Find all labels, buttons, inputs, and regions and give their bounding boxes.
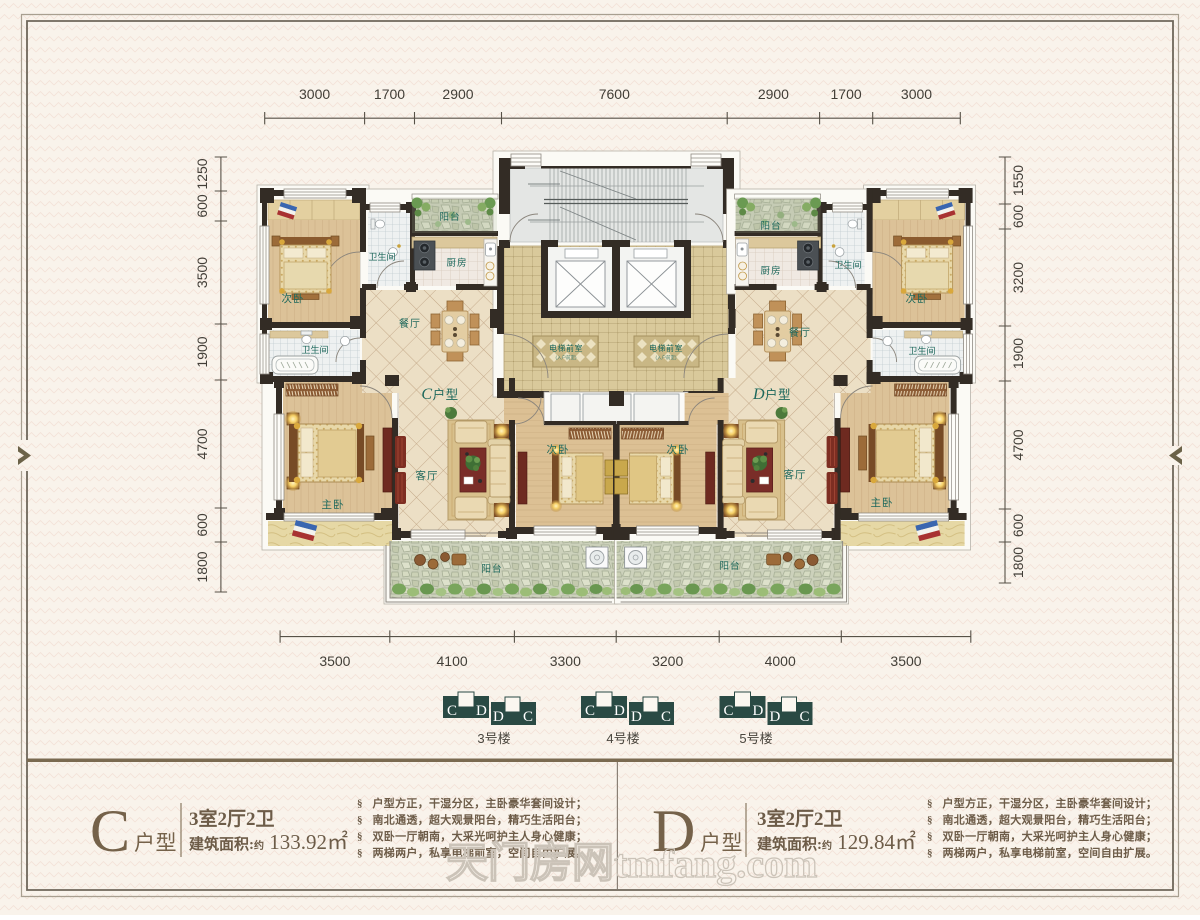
svg-text:C: C (447, 703, 457, 719)
svg-text:D户型: D户型 (752, 386, 791, 403)
svg-text:客厅: 客厅 (416, 469, 439, 482)
svg-text:4700: 4700 (194, 428, 210, 459)
svg-text:餐厅: 餐厅 (399, 317, 421, 330)
svg-text:阳台: 阳台 (760, 220, 781, 232)
svg-text:§户型方正，干湿分区，主卧豪华套间设计；: §户型方正，干湿分区，主卧豪华套间设计； (357, 796, 587, 810)
svg-text:电梯前室: 电梯前室 (649, 343, 683, 353)
svg-text:3300: 3300 (550, 653, 581, 669)
svg-text:餐厅: 餐厅 (789, 326, 811, 339)
svg-text:卫生间: 卫生间 (908, 345, 935, 356)
svg-text:3500: 3500 (890, 653, 921, 669)
svg-text:阳台: 阳台 (439, 211, 460, 223)
svg-text:3000: 3000 (299, 86, 330, 102)
svg-text:主卧: 主卧 (322, 498, 345, 511)
svg-text:厨房: 厨房 (446, 257, 467, 269)
svg-text:600: 600 (194, 194, 210, 218)
svg-text:600: 600 (194, 513, 210, 537)
svg-text:阳台: 阳台 (719, 560, 740, 572)
svg-text:卫生间: 卫生间 (834, 259, 861, 270)
svg-text:3200: 3200 (652, 653, 683, 669)
svg-text:600: 600 (1010, 205, 1026, 229)
svg-text:4700: 4700 (1010, 429, 1026, 460)
svg-text:3200: 3200 (1010, 262, 1026, 293)
svg-text:卫生间: 卫生间 (368, 251, 395, 262)
svg-text:1800: 1800 (194, 551, 210, 582)
svg-text:1900: 1900 (1010, 338, 1026, 369)
svg-text:天门房网tmfang.com: 天门房网tmfang.com (446, 840, 817, 887)
svg-text:3000: 3000 (901, 86, 932, 102)
svg-text:户型: 户型 (134, 831, 177, 855)
svg-text:D: D (476, 703, 487, 719)
svg-text:阳台: 阳台 (481, 563, 502, 575)
svg-text:4000: 4000 (765, 653, 796, 669)
svg-text:次卧: 次卧 (282, 292, 305, 305)
svg-text:2900: 2900 (758, 86, 789, 102)
svg-text:3号楼: 3号楼 (477, 731, 510, 746)
svg-text:1550: 1550 (1010, 165, 1026, 196)
svg-text:(入户前室): (入户前室) (556, 354, 577, 361)
svg-text:§南北通透，超大观景阳台，精巧生活阳台；: §南北通透，超大观景阳台，精巧生活阳台； (357, 813, 587, 827)
svg-text:C: C (523, 709, 533, 725)
svg-text:厨房: 厨房 (760, 265, 781, 277)
svg-text:1900: 1900 (194, 336, 210, 367)
svg-text:电梯前室: 电梯前室 (549, 343, 583, 353)
svg-text:次卧: 次卧 (667, 443, 690, 456)
svg-text:5号楼: 5号楼 (739, 731, 772, 746)
svg-text:600: 600 (1010, 514, 1026, 538)
svg-text:1250: 1250 (194, 158, 210, 189)
svg-text:3500: 3500 (319, 653, 350, 669)
svg-text:客厅: 客厅 (784, 468, 807, 481)
svg-text:卫生间: 卫生间 (301, 344, 328, 355)
svg-text:C: C (90, 798, 130, 864)
svg-text:3室2厅2卫: 3室2厅2卫 (189, 807, 275, 830)
svg-text:4号楼: 4号楼 (606, 731, 639, 746)
svg-text:7600: 7600 (599, 86, 630, 102)
svg-text:3室2厅2卫: 3室2厅2卫 (757, 807, 843, 830)
svg-text:C户型: C户型 (421, 386, 458, 403)
svg-text:§南北通透，超大观景阳台，精巧生活阳台；: §南北通透，超大观景阳台，精巧生活阳台； (927, 813, 1157, 827)
svg-text:§户型方正，干湿分区，主卧豪华套间设计；: §户型方正，干湿分区，主卧豪华套间设计； (927, 796, 1157, 810)
svg-text:D: D (493, 709, 504, 725)
svg-text:1700: 1700 (831, 86, 862, 102)
svg-text:次卧: 次卧 (547, 443, 570, 456)
svg-text:§双卧一厅朝南，大采光呵护主人身心健康；: §双卧一厅朝南，大采光呵护主人身心健康； (927, 829, 1157, 843)
svg-text:2900: 2900 (442, 86, 473, 102)
svg-text:次卧: 次卧 (906, 292, 929, 305)
svg-text:主卧: 主卧 (871, 496, 894, 509)
svg-text:3500: 3500 (194, 257, 210, 288)
svg-text:(入户前室): (入户前室) (656, 354, 677, 361)
svg-text:§两梯两户，私享电梯前室，空间自由扩展。: §两梯两户，私享电梯前室，空间自由扩展。 (927, 846, 1157, 860)
svg-text:1700: 1700 (374, 86, 405, 102)
svg-text:1800: 1800 (1010, 547, 1026, 578)
svg-text:4100: 4100 (437, 653, 468, 669)
